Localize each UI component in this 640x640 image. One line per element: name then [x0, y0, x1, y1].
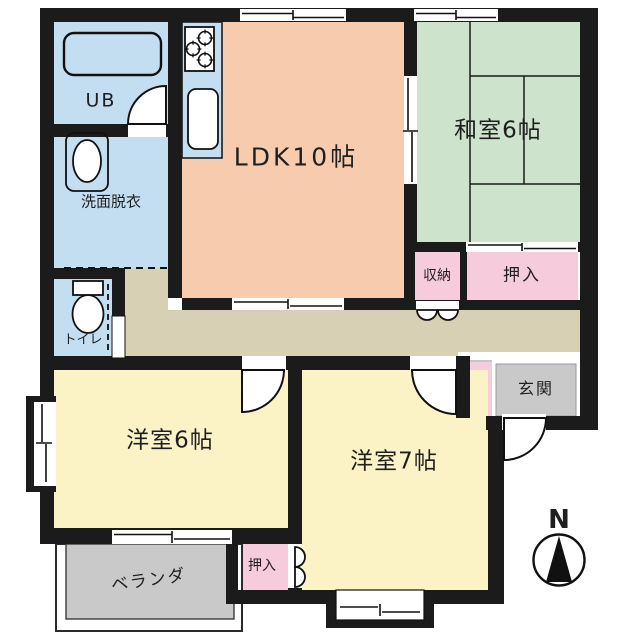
sliding-door-ldk-washitsu: [403, 76, 418, 184]
wall-corridor-b: [286, 356, 410, 370]
label-toilet: トイレ: [63, 334, 102, 347]
yoshitsu7-door-gap: [410, 356, 456, 370]
wall-west-column: [168, 8, 182, 298]
label-unit-bath: UB: [86, 92, 117, 111]
wall-toilet-top: [54, 268, 112, 279]
label-oshiire-south: 押入: [248, 559, 276, 573]
window-top-washitsu: [414, 9, 498, 21]
label-ldk: LDK10帖: [234, 145, 358, 170]
bay-window-yoshitsu7: [326, 590, 434, 628]
door-arc-entrance: [504, 418, 546, 460]
floor-plan: UB 洗面脱衣 トイレ LDK10帖 和室6帖 収納 押入 玄関 洋室6帖 洋室…: [0, 0, 640, 640]
hallway-upper: [125, 268, 168, 316]
label-washitsu: 和室6帖: [454, 120, 542, 143]
label-washroom: 洗面脱衣: [81, 195, 141, 210]
label-yoshitsu7: 洋室7帖: [350, 451, 438, 474]
sliding-door-oshiire-north: [466, 242, 578, 252]
bay-window-yoshitsu6: [26, 396, 56, 492]
wall-shuno-west: [404, 242, 415, 310]
wall-right: [580, 8, 598, 430]
yoshitsu6-door-gap: [242, 356, 286, 370]
wall-corridor-a: [54, 356, 242, 370]
label-compass-north: N: [548, 507, 570, 533]
toilet-door: [112, 316, 125, 358]
ub-door-gap: [128, 124, 166, 137]
wall-genkan-west: [456, 356, 470, 418]
label-yoshitsu6: 洋室6帖: [126, 430, 214, 453]
toilet-icon: [73, 281, 104, 333]
label-genkan: 玄関: [518, 381, 554, 397]
wall-oshiire-south-bottom: [226, 590, 302, 604]
window-top-ldk: [240, 9, 346, 21]
label-shuno: 収納: [423, 269, 451, 283]
shuno-door-gap: [416, 301, 459, 310]
kitchen-sink-icon: [188, 89, 218, 149]
wall-yoshitsu7-east: [488, 416, 504, 604]
stove-icon: [185, 27, 214, 71]
compass-icon: [534, 535, 585, 586]
label-oshiire-north: 押入: [503, 268, 541, 285]
wall-shuno-oshiire: [460, 252, 467, 302]
window-yoshitsu6-veranda: [112, 530, 232, 544]
hallway-main: [125, 310, 580, 356]
sliding-door-ldk-hallway: [232, 298, 344, 310]
